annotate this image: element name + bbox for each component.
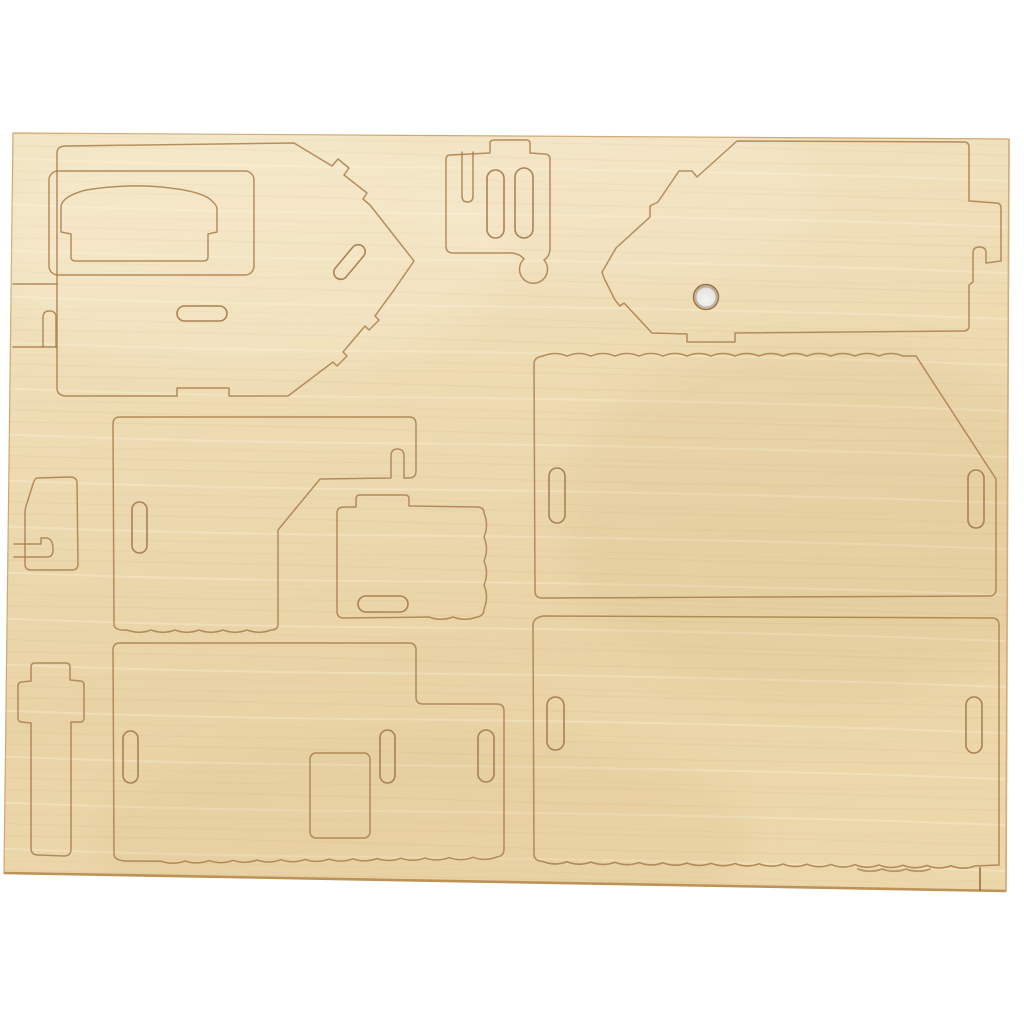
wood-grain-texture [0,110,1024,950]
product-photo [0,0,1024,1024]
through-hole [694,285,719,310]
plywood-sheet [0,110,1024,950]
plywood-sheet-photo [0,0,1024,1024]
